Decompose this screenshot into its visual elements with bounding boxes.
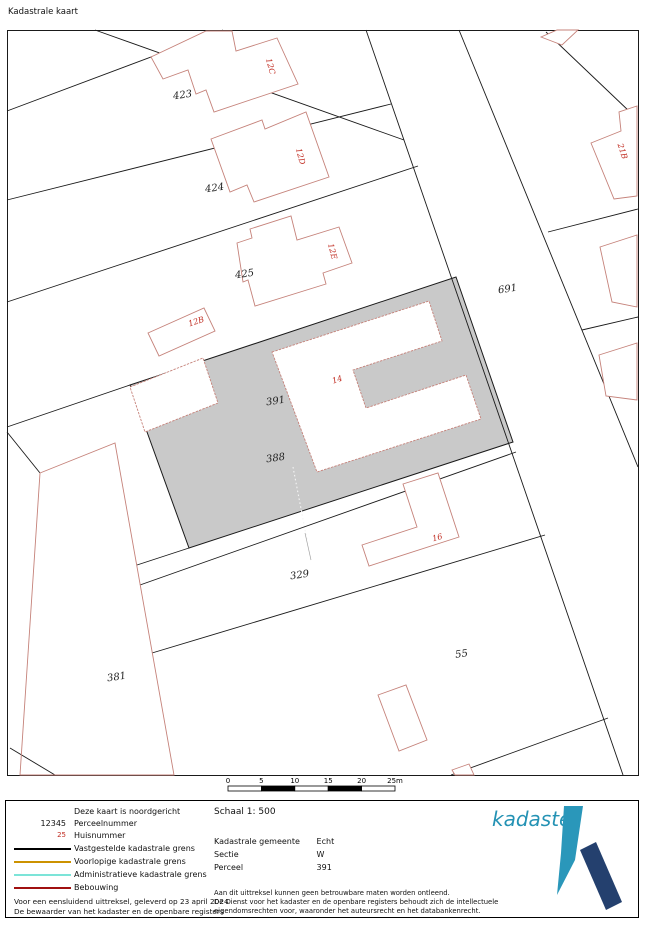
field-value-sectie: W	[317, 850, 325, 859]
field-value-gemeente: Echt	[317, 837, 335, 846]
scalebar-tick-25m: 25m	[387, 777, 403, 785]
scalebar-segment	[328, 786, 361, 791]
scalebar-segment	[362, 786, 395, 791]
scalebar-tick-5: 5	[259, 777, 263, 785]
disclaimer-line-1: Aan dit uittreksel kunnen geen betrouwba…	[214, 889, 450, 897]
legend-footer-2: De bewaarder van het kadaster en de open…	[14, 907, 224, 916]
parcel-number-label: Perceelnummer	[74, 819, 137, 828]
scalebar-tick-15: 15	[324, 777, 333, 785]
scalebar-tick-10: 10	[290, 777, 299, 785]
house-number-sample: 25	[20, 831, 66, 839]
legend-label-administratief: Administratieve kadastrale grens	[74, 870, 207, 879]
legend-line-vastgesteld	[14, 848, 71, 850]
logo-bar-shape	[580, 842, 622, 910]
field-label-sectie: Sectie	[214, 850, 314, 859]
house-number-label: Huisnummer	[74, 831, 125, 840]
info-box: Deze kaart is noordgericht 12345 Perceel…	[5, 800, 639, 918]
logo-pen-shape	[557, 806, 583, 895]
legend-label-vastgesteld: Vastgestelde kadastrale grens	[74, 844, 195, 853]
field-value-perceel: 391	[317, 863, 332, 872]
field-label-gemeente: Kadastrale gemeente	[214, 837, 314, 846]
kadastrale-kaart-page: Kadastrale kaart 42342442569139138832955…	[0, 0, 646, 927]
legend-label-bebouwing: Bebouwing	[74, 883, 118, 892]
north-note: Deze kaart is noordgericht	[74, 807, 180, 816]
disclaimer-line-3: eigendomsrechten voor, waaronder het aut…	[214, 907, 481, 915]
legend-footer-1: Voor een eensluidend uittreksel, gelever…	[14, 897, 229, 906]
scalebar-segment	[295, 786, 328, 791]
scalebar-tick-0: 0	[226, 777, 230, 785]
parcel-number-55: 55	[455, 648, 469, 661]
scale-text: Schaal 1: 500	[214, 807, 276, 817]
parcel-number-sample: 12345	[20, 819, 66, 828]
legend-label-voorlopig: Voorlopige kadastrale grens	[74, 857, 186, 866]
legend-line-administratief	[14, 874, 71, 876]
cadastral-map: 4234244256913913883295538112C12D12E21B12…	[0, 0, 646, 800]
legend-line-voorlopig	[14, 861, 71, 863]
scalebar-segment	[261, 786, 294, 791]
disclaimer-line-2: De Dienst voor het kadaster en de openba…	[214, 898, 498, 906]
scalebar-segment	[228, 786, 261, 791]
field-label-perceel: Perceel	[214, 863, 314, 872]
kadaster-logo-mark	[554, 803, 634, 915]
scalebar-tick-20: 20	[357, 777, 366, 785]
legend-line-bebouwing	[14, 887, 71, 889]
